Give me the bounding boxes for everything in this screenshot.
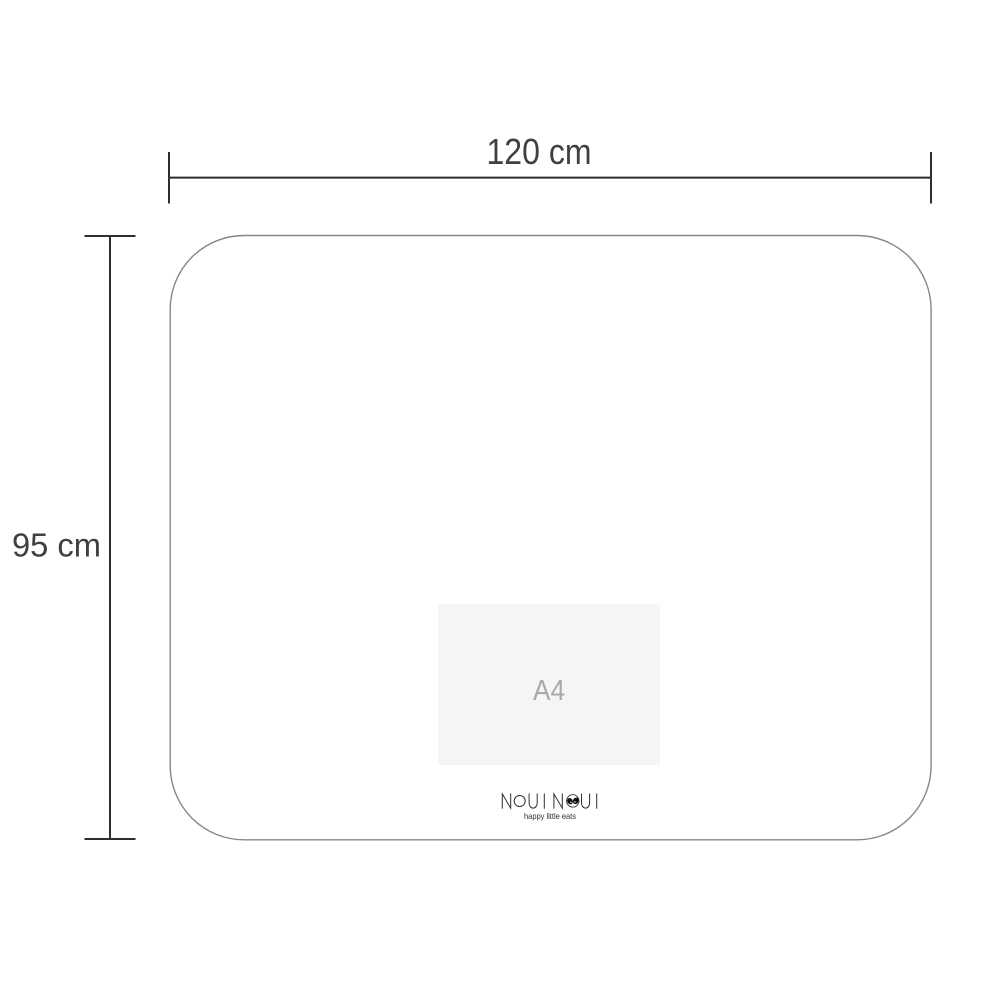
- svg-text:120 cm: 120 cm: [487, 131, 592, 172]
- svg-text:A4: A4: [533, 675, 565, 707]
- svg-text:95 cm: 95 cm: [12, 527, 101, 564]
- svg-text:happy little eats: happy little eats: [524, 811, 576, 821]
